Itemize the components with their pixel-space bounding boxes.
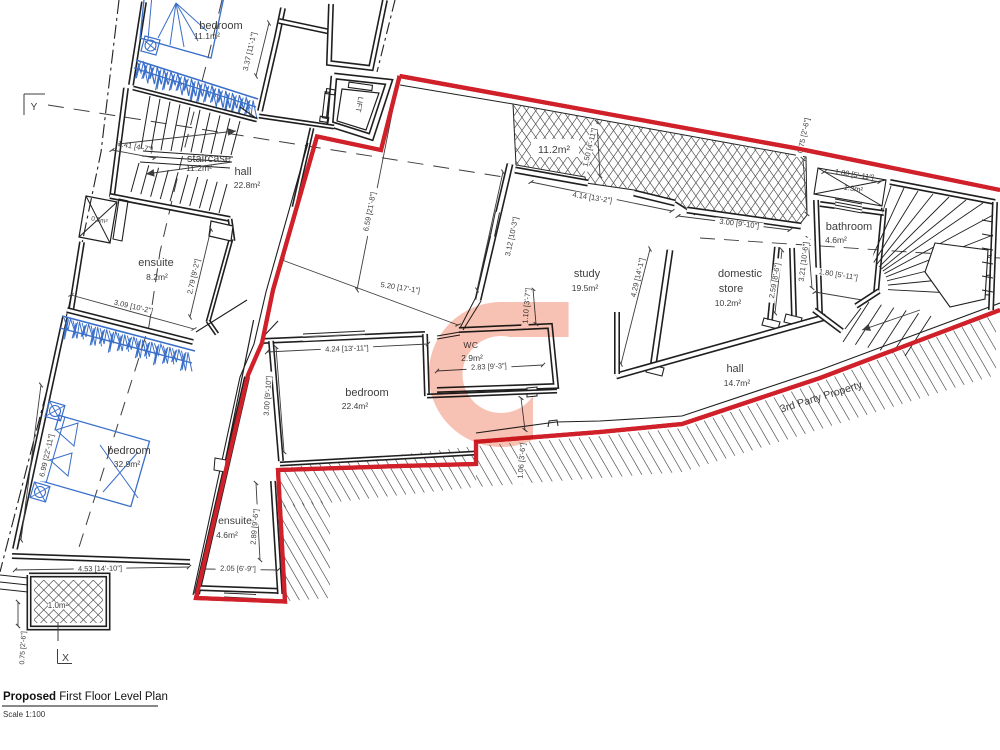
svg-text:19.5m²: 19.5m² (572, 283, 599, 293)
svg-text:4.6m²: 4.6m² (216, 530, 238, 540)
svg-text:14.7m²: 14.7m² (724, 378, 751, 388)
svg-text:8.2m²: 8.2m² (146, 272, 168, 282)
svg-text:4.24 [13'-11"]: 4.24 [13'-11"] (325, 343, 369, 354)
svg-text:22.8m²: 22.8m² (234, 180, 261, 190)
svg-text:hall: hall (234, 166, 251, 178)
svg-text:22.4m²: 22.4m² (342, 401, 369, 411)
svg-text:ensuite: ensuite (138, 257, 173, 269)
svg-text:32.9m²: 32.9m² (114, 459, 141, 469)
svg-text:Y: Y (31, 102, 38, 113)
svg-text:bedroom: bedroom (107, 445, 150, 457)
svg-text:4.53 [14'-10"]: 4.53 [14'-10"] (78, 564, 122, 574)
svg-text:1.0m²: 1.0m² (48, 601, 69, 610)
svg-text:11.2m²: 11.2m² (186, 163, 212, 173)
svg-text:2.05 [6'-9"]: 2.05 [6'-9"] (220, 564, 256, 574)
svg-text:Proposed First Floor Level Pla: Proposed First Floor Level Plan (3, 691, 168, 703)
svg-text:store: store (719, 283, 743, 295)
svg-text:study: study (574, 268, 601, 280)
svg-text:2.83 [9'-3"]: 2.83 [9'-3"] (471, 361, 507, 372)
svg-text:hall: hall (726, 363, 743, 375)
svg-text:10.2m²: 10.2m² (715, 298, 742, 308)
svg-text:11.2m²: 11.2m² (538, 144, 570, 156)
svg-text:11.1m²: 11.1m² (194, 31, 220, 41)
svg-text:4.6m²: 4.6m² (825, 235, 847, 245)
svg-text:domestic: domestic (718, 268, 763, 280)
svg-text:Scale 1:100: Scale 1:100 (3, 710, 46, 719)
svg-text:X: X (62, 652, 69, 664)
svg-text:ensuite: ensuite (218, 515, 252, 527)
svg-text:bedroom: bedroom (345, 387, 388, 399)
svg-text:bathroom: bathroom (826, 221, 872, 233)
